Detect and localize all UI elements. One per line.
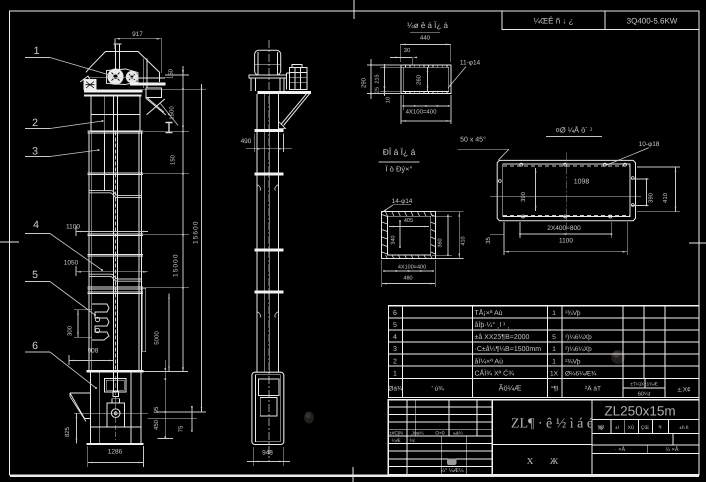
svg-text:Ø¼6¼Æ¾: Ø¼6¼Æ¾ xyxy=(565,370,597,377)
svg-text:75: 75 xyxy=(178,425,185,432)
svg-text:11-φ14: 11-φ14 xyxy=(460,60,481,67)
svg-text:ÇŒ: ÇŒ xyxy=(641,425,649,431)
svg-text:35: 35 xyxy=(485,237,492,244)
svg-text:908: 908 xyxy=(88,348,99,355)
svg-text:410: 410 xyxy=(662,192,669,203)
svg-text:±å XX2Ƽ¶B=2000: ±å XX2Ƽ¶B=2000 xyxy=(475,333,530,341)
svg-text:15600: 15600 xyxy=(193,220,200,244)
svg-text:°¶l: °¶l xyxy=(551,386,559,393)
svg-text:åÌþ·¼° ¸l ¹ ¸: åÌþ·¼° ¸l ¹ ¸ xyxy=(475,320,510,329)
svg-text:405: 405 xyxy=(404,218,413,224)
svg-text:5: 5 xyxy=(552,334,556,341)
svg-text:1500: 1500 xyxy=(169,106,176,120)
svg-text:290: 290 xyxy=(361,77,368,88)
svg-text:948: 948 xyxy=(262,450,273,457)
svg-text:O×0: O×0 xyxy=(435,430,445,436)
svg-text:360: 360 xyxy=(438,238,444,247)
svg-text:260: 260 xyxy=(416,74,423,85)
svg-text:Ãö¼Æ: Ãö¼Æ xyxy=(499,384,522,393)
svg-text:±T¼)X±1¾Æ: ±T¼)X±1¾Æ xyxy=(630,381,658,386)
svg-text:2: 2 xyxy=(32,117,38,129)
svg-text:150: 150 xyxy=(170,154,177,165)
svg-text:±h Ït: ±h Ït xyxy=(679,424,689,431)
svg-text:5: 5 xyxy=(32,269,38,281)
svg-text:TÅ¡×ª Aù: TÅ¡×ª Aù xyxy=(475,308,503,317)
svg-text:25: 25 xyxy=(375,87,381,93)
svg-text:ьà¼: ьà¼ xyxy=(453,430,463,436)
svg-text:±l: ±l xyxy=(615,425,619,431)
svg-text:825: 825 xyxy=(64,426,71,437)
svg-text:1100: 1100 xyxy=(559,238,573,245)
svg-text:Χ: Χ xyxy=(527,456,534,466)
svg-text:ZL250x15m: ZL250x15m xyxy=(604,404,675,419)
svg-text:5000: 5000 xyxy=(154,331,161,345)
svg-text:¼ ×Å: ¼ ×Å xyxy=(666,446,679,453)
svg-text:¾l: ¾l xyxy=(409,438,414,444)
svg-text:6: 6 xyxy=(393,310,397,317)
svg-text:1050: 1050 xyxy=(64,260,79,267)
svg-text:4: 4 xyxy=(393,334,397,341)
svg-text:Øá¾: Øá¾ xyxy=(388,386,403,393)
svg-text:ZL¶ · ê ½ ì á é: ZL¶ · ê ½ ì á é xyxy=(511,417,593,432)
svg-text:¹)¼6¼Xþ: ¹)¼6¼Xþ xyxy=(565,346,592,353)
svg-text:¹)¼6¼Xþ: ¹)¼6¼Xþ xyxy=(565,334,592,341)
svg-text:åÏ¼×ª Aù: åÏ¼×ª Aù xyxy=(475,357,504,365)
svg-text:±#C|N: ±#C|N xyxy=(389,430,403,436)
svg-text:1: 1 xyxy=(393,370,397,377)
svg-text:¼ø ê á Ï¿ á: ¼ø ê á Ï¿ á xyxy=(407,21,448,30)
svg-text:10-φ18: 10-φ18 xyxy=(639,141,660,148)
svg-text:95: 95 xyxy=(153,406,160,413)
svg-text:300: 300 xyxy=(67,325,74,336)
svg-text:150: 150 xyxy=(168,68,175,79)
svg-text:Ï ò Ðý×°: Ï ò Ðý×° xyxy=(386,165,413,174)
svg-text:XÛ: XÛ xyxy=(628,424,635,431)
svg-text:' ú¾: ' ú¾ xyxy=(432,386,445,393)
svg-text:480: 480 xyxy=(403,276,412,282)
svg-text:1: 1 xyxy=(552,310,556,317)
svg-text:¼ŒÊ ñ ↓ ¿: ¼ŒÊ ñ ↓ ¿ xyxy=(533,17,573,26)
svg-text:²Ä áT: ²Ä áT xyxy=(585,385,601,393)
svg-text:917: 917 xyxy=(132,31,143,38)
svg-text:5: 5 xyxy=(393,322,397,329)
svg-text:490: 490 xyxy=(241,138,252,145)
svg-text:¤Ø ¼Å ō´ ¹: ¤Ø ¼Å ō´ ¹ xyxy=(556,126,593,135)
svg-text:1100: 1100 xyxy=(66,224,80,231)
svg-text:ÏÑ: ÏÑ xyxy=(599,424,604,431)
svg-text:1098: 1098 xyxy=(574,179,590,186)
svg-text:Ж: Ж xyxy=(550,456,559,466)
svg-text:¹¾Vþ: ¹¾Vþ xyxy=(565,310,581,317)
svg-text:410: 410 xyxy=(461,236,467,245)
svg-text:,Joa¼: ,Joa¼ xyxy=(410,430,424,436)
svg-text:2X400=800: 2X400=800 xyxy=(547,225,581,232)
svg-text:4X100=400: 4X100=400 xyxy=(406,108,438,115)
svg-text:60¼t: 60¼t xyxy=(638,392,651,398)
svg-text:ªl: ªl xyxy=(659,425,662,431)
svg-text:2: 2 xyxy=(393,358,397,365)
svg-text:· ×Å: · ×Å xyxy=(615,446,626,453)
svg-text:¹¾Vþ: ¹¾Vþ xyxy=(565,358,581,365)
svg-text:¼° ¼Æ¼: ¼° ¼Æ¼ xyxy=(441,468,464,474)
svg-text:50 x 45°: 50 x 45° xyxy=(460,137,486,144)
svg-text:1: 1 xyxy=(552,358,556,365)
svg-text:1286: 1286 xyxy=(108,449,123,456)
svg-text:4X100=400: 4X100=400 xyxy=(398,265,426,271)
svg-text:215: 215 xyxy=(375,74,381,83)
svg-text:390: 390 xyxy=(648,192,655,203)
svg-text:±,X¢: ±,X¢ xyxy=(677,387,691,394)
svg-text:CÅÌ¾ Xª Ć¾: CÅÌ¾ Xª Ć¾ xyxy=(475,368,515,377)
svg-text:1: 1 xyxy=(34,45,40,57)
svg-text:14-φ14: 14-φ14 xyxy=(392,198,413,205)
svg-text:440: 440 xyxy=(420,35,431,42)
svg-text:4: 4 xyxy=(33,219,39,231)
svg-text:450: 450 xyxy=(153,419,160,430)
svg-text:6: 6 xyxy=(32,340,38,352)
svg-text:3: 3 xyxy=(32,146,38,158)
svg-text:¼Æ: ¼Æ xyxy=(392,438,401,444)
svg-text:340: 340 xyxy=(391,235,397,244)
svg-text:·C±å¼¶¼B=1500mm: ·C±å¼¶¼B=1500mm xyxy=(475,345,542,353)
svg-text:1X: 1X xyxy=(550,370,559,377)
svg-text:30: 30 xyxy=(404,47,411,54)
svg-text:15000: 15000 xyxy=(173,253,180,277)
svg-text:1: 1 xyxy=(552,346,556,353)
svg-text:10: 10 xyxy=(386,97,392,103)
svg-text:390: 390 xyxy=(520,191,527,202)
svg-text:3Q400-5.6KW: 3Q400-5.6KW xyxy=(627,17,678,26)
svg-text:ÐÎ á Ï¿ á: ÐÎ á Ï¿ á xyxy=(383,147,416,157)
svg-text:3: 3 xyxy=(393,346,397,353)
